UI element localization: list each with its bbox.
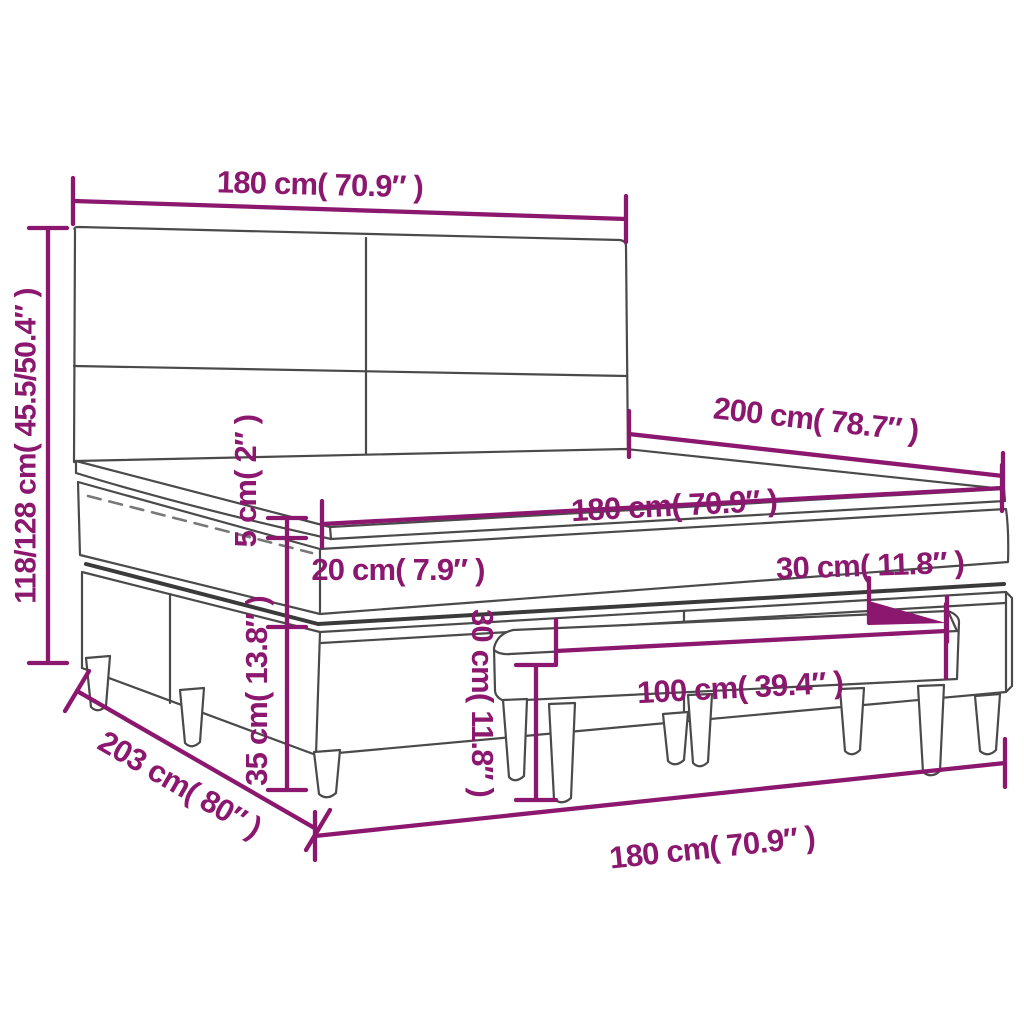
label-topper-thickness: 5 cm( 2″ ) xyxy=(228,415,263,548)
bed-leg xyxy=(663,712,688,764)
bench-leg xyxy=(549,703,575,802)
label-base-height: 35 cm( 13.8″ ) xyxy=(239,596,274,786)
bench-leg xyxy=(918,685,944,775)
headboard-outline xyxy=(74,227,628,462)
label-bed-width: 180 cm( 70.9″ ) xyxy=(608,819,817,875)
bed-dimensions-drawing: 180 cm( 70.9″ ) 118/128 cm( 45.5/50.4″ )… xyxy=(0,0,1024,1024)
bed-leg xyxy=(975,694,1000,754)
bed-drawing xyxy=(74,227,1012,802)
headboard xyxy=(74,227,628,462)
product-dimension-diagram: 180 cm( 70.9″ ) 118/128 cm( 45.5/50.4″ )… xyxy=(0,0,1024,1024)
label-mattress-thickness: 20 cm( 7.9″ ) xyxy=(311,552,484,587)
bed-leg xyxy=(180,688,204,746)
label-headboard-width: 180 cm( 70.9″ ) xyxy=(216,164,423,204)
topper-corner-seam xyxy=(330,527,331,539)
bed-leg xyxy=(314,750,340,797)
label-bench-depth: 30 cm( 11.8″ ) xyxy=(775,545,964,587)
label-bench-height: 30 cm( 11.8″ ) xyxy=(465,609,500,797)
bench-leg xyxy=(503,699,527,780)
label-bed-height: 118/128 cm( 45.5/50.4″ ) xyxy=(10,288,43,603)
label-bed-length: 200 cm( 78.7″ ) xyxy=(712,390,921,448)
